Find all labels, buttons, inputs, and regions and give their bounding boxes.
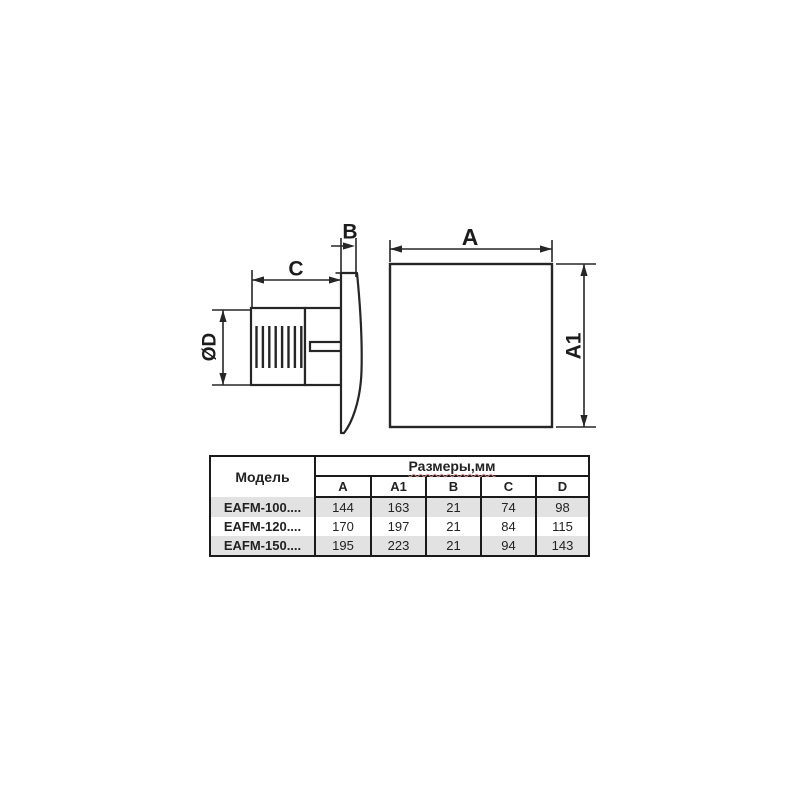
- front-view: A A1: [390, 224, 596, 427]
- table-header-dim-a1: A1: [371, 476, 426, 497]
- table-cell: 21: [426, 497, 481, 517]
- dim-C: C: [252, 258, 341, 308]
- table-cell: 223: [371, 536, 426, 556]
- dim-B: B: [331, 221, 358, 278]
- dim-label-a1: A1: [563, 332, 586, 359]
- table-cell: 84: [481, 517, 536, 536]
- table-cell: 197: [371, 517, 426, 536]
- dimensions-group-label: Размеры,мм: [409, 458, 496, 474]
- dimensions-table: Модель Размеры,мм A A1 B C D EAFM-100...…: [209, 455, 590, 557]
- table-cell: 144: [315, 497, 371, 517]
- duct-body: [251, 308, 305, 385]
- model-name-cell: EAFM-150....: [210, 536, 315, 556]
- dim-A: A: [390, 224, 552, 262]
- dim-label-a: A: [462, 224, 479, 250]
- dim-A1: A1: [556, 264, 596, 427]
- dim-D: ØD: [200, 310, 251, 385]
- fan-dimension-drawing: C B ØD: [0, 0, 800, 455]
- front-panel-profile: [341, 273, 362, 433]
- table-cell: 163: [371, 497, 426, 517]
- table-cell: 21: [426, 536, 481, 556]
- table-header-dim-a: A: [315, 476, 371, 497]
- table-cell: 170: [315, 517, 371, 536]
- table-cell: 98: [536, 497, 589, 517]
- table-header-dimensions-group: Размеры,мм: [315, 456, 589, 476]
- table-cell: 143: [536, 536, 589, 556]
- model-name-cell: EAFM-100....: [210, 497, 315, 517]
- table-header-dim-b: B: [426, 476, 481, 497]
- dim-label-c: C: [288, 258, 303, 281]
- table-cell: 94: [481, 536, 536, 556]
- front-panel-face: [390, 264, 552, 427]
- table-row: EAFM-120.... 170 197 21 84 115: [210, 517, 589, 536]
- mounting-slot: [310, 342, 341, 351]
- side-view: C B ØD: [200, 221, 362, 434]
- table-header-dim-d: D: [536, 476, 589, 497]
- table-cell: 115: [536, 517, 589, 536]
- table-row: EAFM-150.... 195 223 21 94 143: [210, 536, 589, 556]
- dim-label-diameter: ØD: [200, 333, 221, 362]
- page: C B ØD: [0, 0, 800, 800]
- table-row: EAFM-100.... 144 163 21 74 98: [210, 497, 589, 517]
- table-cell: 21: [426, 517, 481, 536]
- table-cell: 195: [315, 536, 371, 556]
- table-header-dim-c: C: [481, 476, 536, 497]
- model-name-cell: EAFM-120....: [210, 517, 315, 536]
- table-header-model: Модель: [210, 456, 315, 497]
- table-cell: 74: [481, 497, 536, 517]
- dim-label-b: B: [342, 221, 357, 244]
- dimensions-table-container: Модель Размеры,мм A A1 B C D EAFM-100...…: [209, 455, 590, 557]
